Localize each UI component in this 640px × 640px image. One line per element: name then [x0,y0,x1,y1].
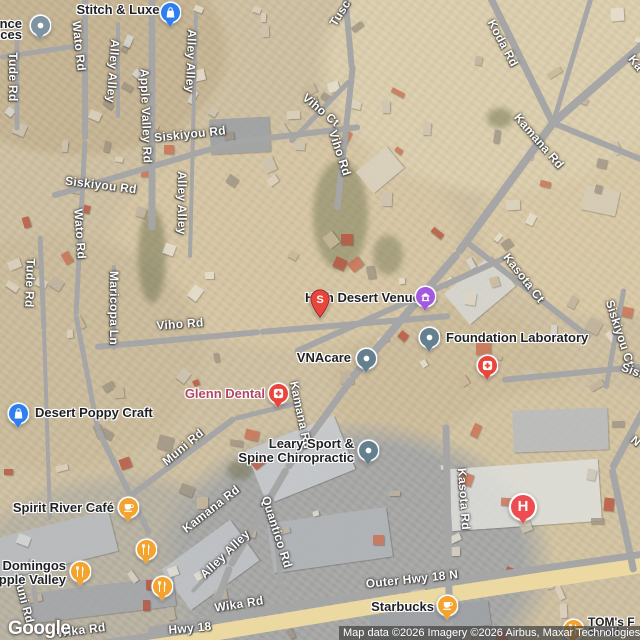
building [204,272,213,279]
high-desert-venues-marker-venue-icon[interactable] [416,287,435,311]
svg-text:S: S [316,294,323,306]
restaurant-marker-fork-knife-icon[interactable] [153,577,172,601]
poi-label-vnacare[interactable]: VNAcare [297,351,351,365]
building [451,547,461,556]
building [295,142,306,151]
road-label-maricopa-ln: Maricopa Ln [107,271,121,345]
medical-marker-med-cross-icon[interactable] [478,356,497,380]
vnacare-marker-place-dot-icon[interactable] [357,349,376,373]
building [164,145,174,154]
building [512,407,608,452]
building [591,518,603,524]
building [603,498,614,512]
poi-label-partial-business[interactable]: anceices [0,18,22,41]
building [399,278,405,285]
building [382,191,393,205]
building [423,121,432,135]
poi-label-desert-poppy-craft[interactable]: Desert Poppy Craft [35,406,153,420]
building [166,607,176,621]
leary-chiropractic-marker-place-dot-icon[interactable] [359,441,378,465]
google-logo[interactable]: Google [8,618,70,640]
poi-label-spirit-river-cafe[interactable]: Spirit River Café [13,501,114,515]
restaurant-marker-fork-knife-icon[interactable] [137,540,156,564]
desert-poppy-craft-marker-shopping-bag-icon[interactable] [9,404,28,428]
road-label-alley-alley: Alley Alley [183,29,199,93]
building [143,600,150,612]
building [382,101,390,113]
building [260,13,266,22]
road-label-tude-rd: Tude Rd [6,52,20,101]
map-attribution: Map data ©2026 Imagery ©2026 Airbus, Max… [339,626,640,640]
generic-place-marker-place-dot-icon[interactable] [31,16,50,40]
building [560,603,568,617]
poi-label-foundation-laboratory[interactable]: Foundation Laboratory [446,331,588,345]
spirit-river-cafe-marker-coffee-cup-icon[interactable] [119,498,138,522]
building [464,292,477,306]
building [612,421,624,427]
building [505,200,519,211]
poi-label-glenn-dental[interactable]: Glenn Dental [185,387,265,401]
vegetation-patch [373,235,403,275]
poi-label-stitch-and-luxe[interactable]: Stitch & Luxe [76,3,159,17]
building [312,510,320,517]
domingos-marker-fork-knife-icon[interactable] [71,562,90,586]
building [493,129,501,142]
building [389,491,400,497]
poi-label-leary-sport-spine-chiropractic[interactable]: Leary Sport &Spine Chiropractic [238,437,354,465]
foundation-laboratory-marker-place-dot-icon[interactable] [420,328,439,352]
hospital-marker-hospital-h-icon[interactable]: H [511,495,535,524]
building [611,7,625,20]
building [287,111,301,119]
building [261,26,269,37]
road-label-alley-alley: Alley Alley [175,171,189,235]
glenn-dental-marker-med-cross-icon[interactable] [269,384,288,408]
building [114,387,125,399]
road-label-tude-rd: Tude Rd [22,258,38,308]
poi-label-domingos-apple-valley[interactable]: DomingosApple Valley [0,559,66,587]
starbucks-marker-coffee-cup-icon[interactable] [438,596,457,620]
building [372,535,384,545]
building [67,330,73,339]
map-canvas[interactable]: Tude RdWato RdAlley AlleyAlley AlleyAppl… [0,0,640,640]
vegetation-patch [487,108,513,128]
poi-label-starbucks[interactable]: Starbucks [371,600,434,614]
building [341,234,352,244]
building [4,469,13,475]
search-result-pin-pin-letter-icon[interactable]: S [310,289,330,319]
stitch-and-luxe-marker-shopping-bag-icon[interactable] [161,3,180,27]
